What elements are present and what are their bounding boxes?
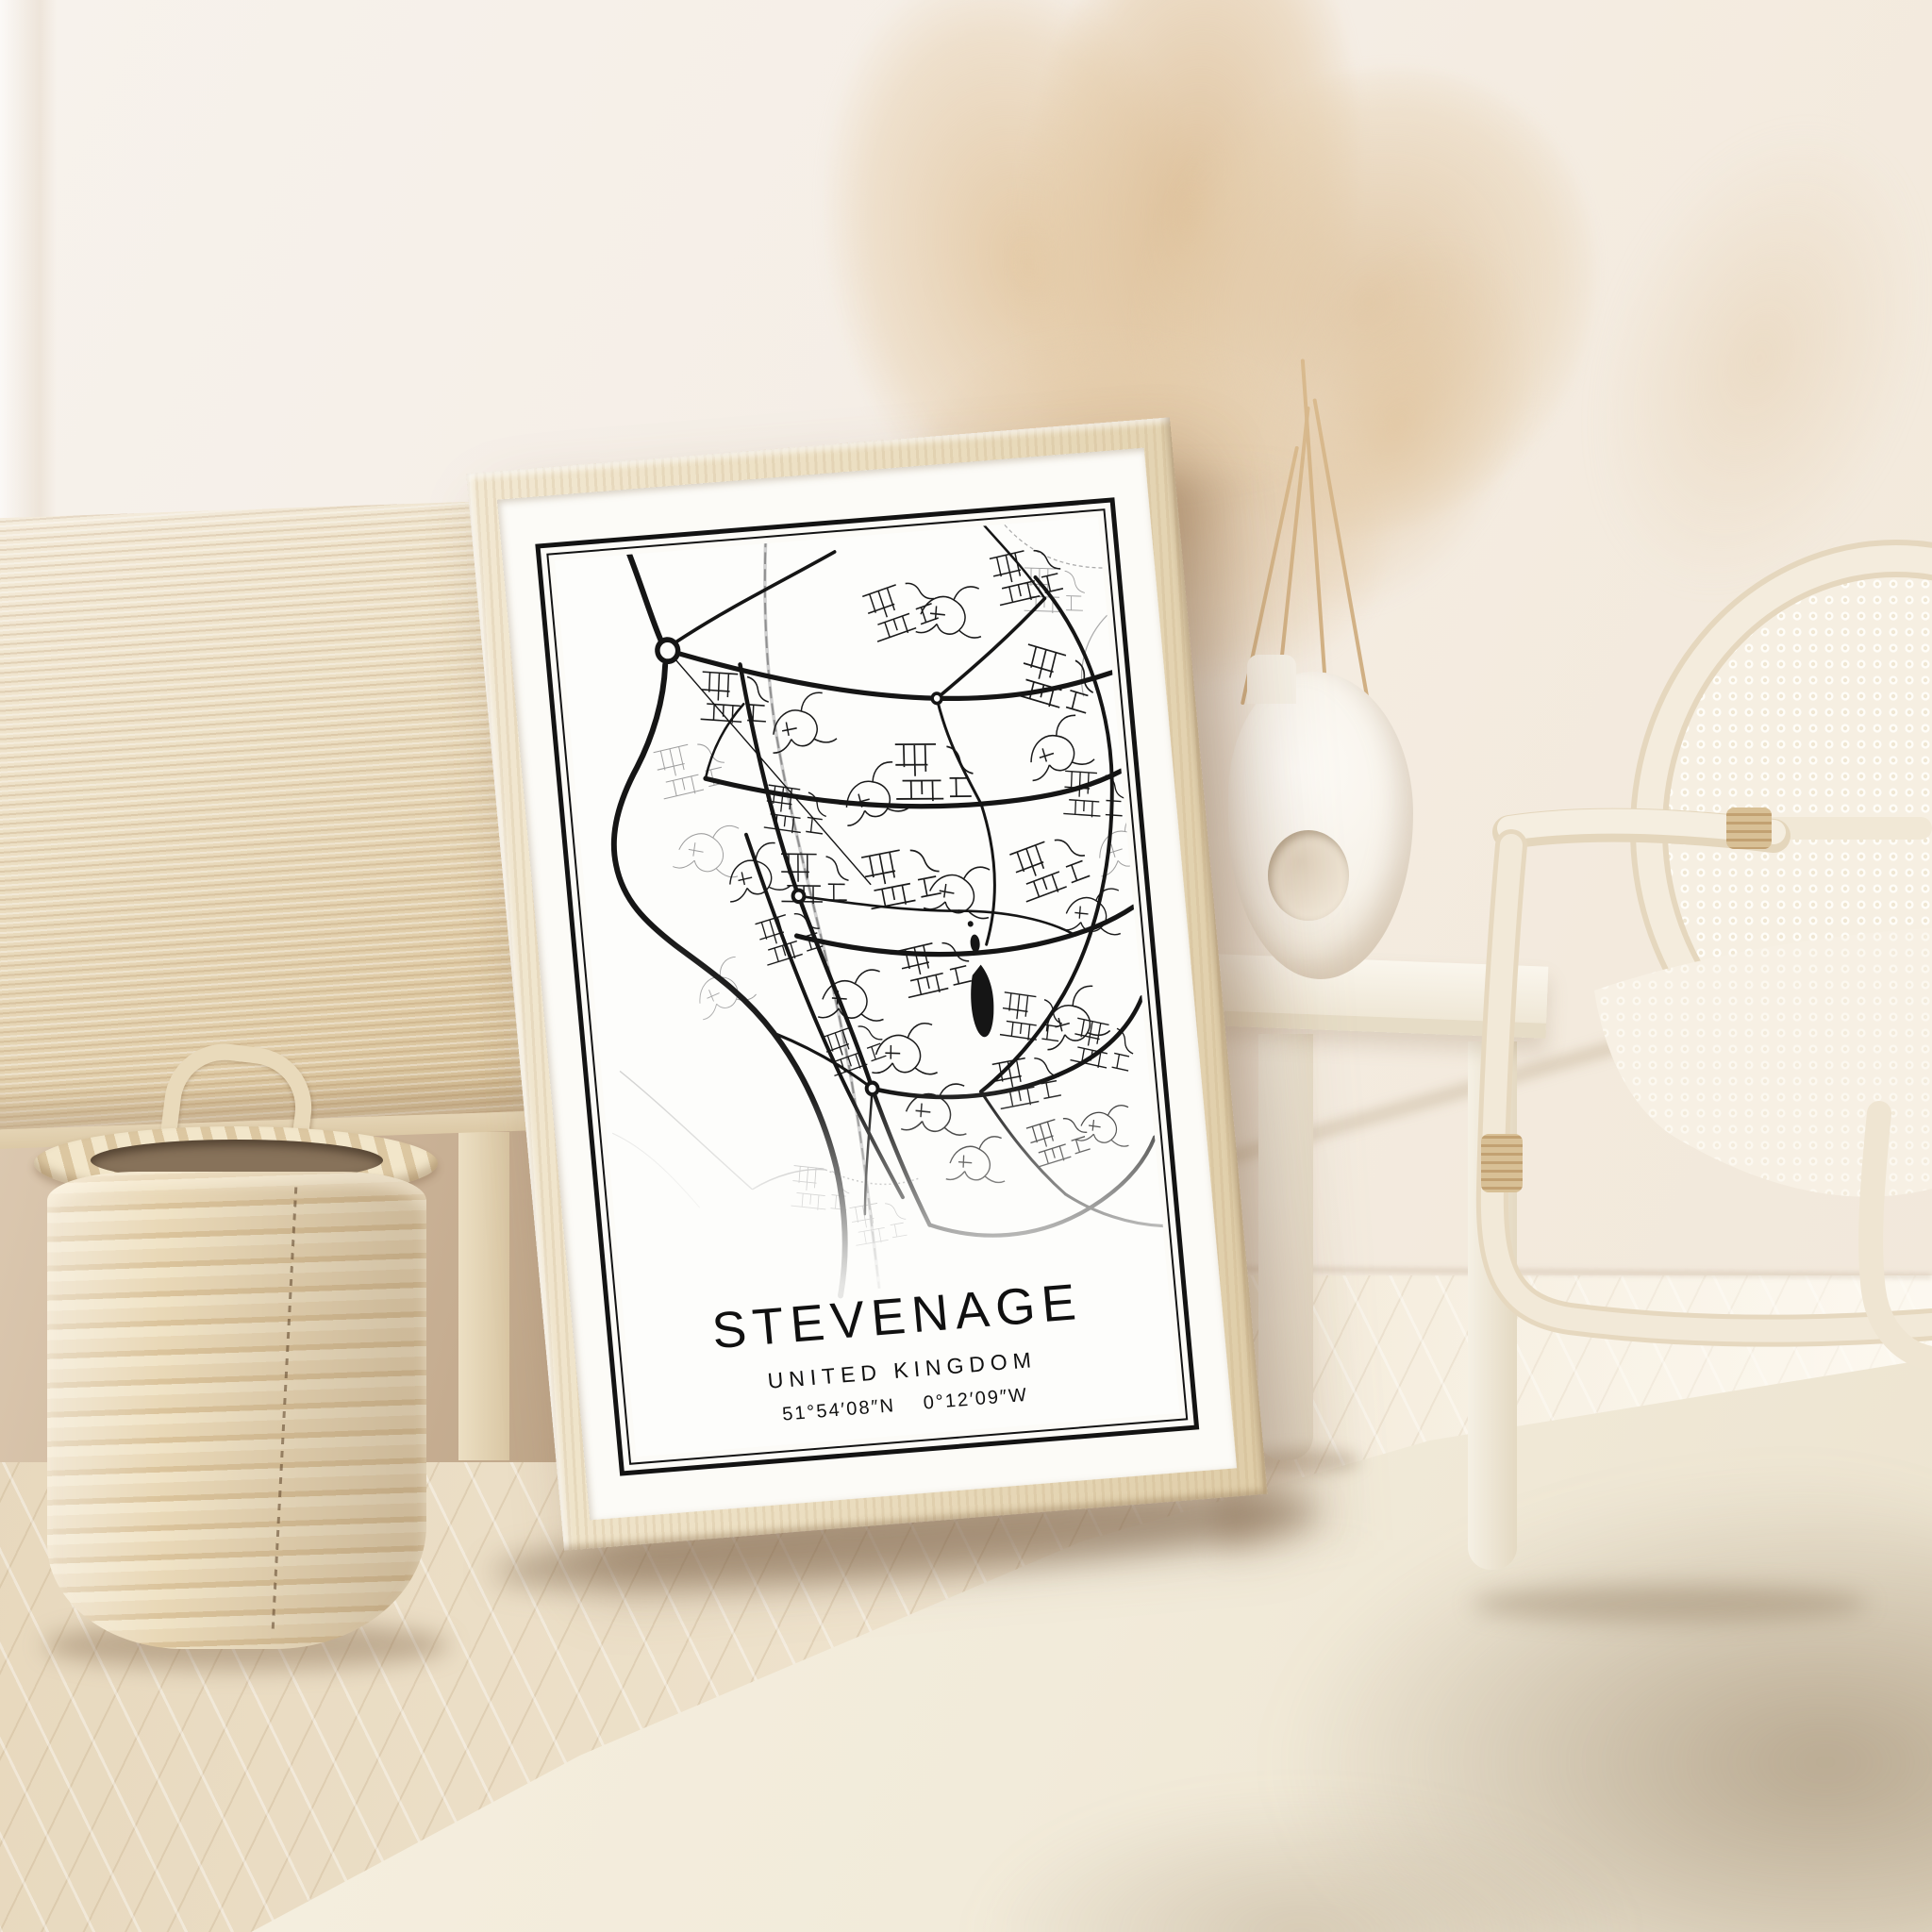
stevenage-city-map <box>555 517 1180 1457</box>
poster-double-border: STEVENAGE UNITED KINGDOM 51°54′08″N0°12′… <box>535 497 1199 1475</box>
chair-frame <box>1481 558 1932 1358</box>
lake <box>964 920 997 1038</box>
latitude: 51°54′08″N <box>781 1395 896 1425</box>
poster-coordinates: 51°54′08″N0°12′09″W <box>620 1372 1191 1440</box>
poster-subtitle: UNITED KINGDOM <box>616 1335 1188 1406</box>
poster-title: STEVENAGE <box>609 1266 1184 1368</box>
framed-map-poster: STEVENAGE UNITED KINGDOM 51°54′08″N0°12′… <box>466 417 1267 1550</box>
rattan-chair <box>1453 528 1932 1641</box>
linen-pillow <box>0 499 554 1130</box>
woven-basket <box>47 1172 426 1649</box>
rope-wrap <box>1726 808 1772 849</box>
longitude: 0°12′09″W <box>923 1385 1029 1414</box>
bench-leg <box>458 1132 509 1460</box>
rope-wrap <box>1481 1134 1523 1192</box>
poster-mat: STEVENAGE UNITED KINGDOM 51°54′08″N0°12′… <box>497 448 1237 1521</box>
chair-leg-shadow <box>1472 1585 1868 1623</box>
poster-caption: STEVENAGE UNITED KINGDOM 51°54′08″N0°12′… <box>609 1266 1191 1439</box>
styled-room-photo: STEVENAGE UNITED KINGDOM 51°54′08″N0°12′… <box>0 0 1932 1932</box>
